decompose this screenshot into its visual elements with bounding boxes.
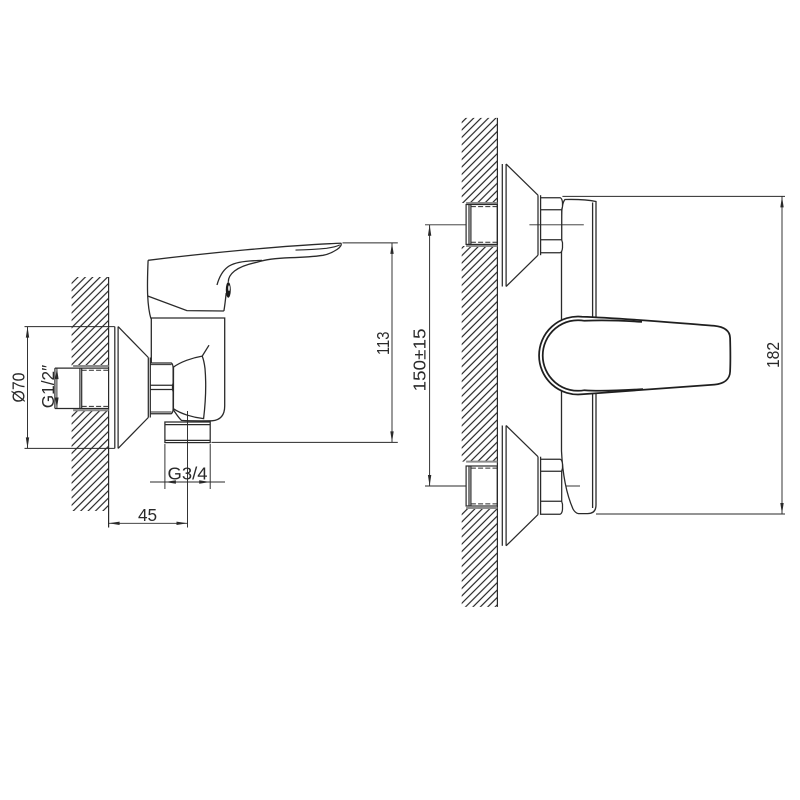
- svg-text:113: 113: [373, 332, 393, 356]
- svg-text:G1/2″: G1/2″: [38, 365, 58, 409]
- svg-text:45: 45: [138, 505, 157, 525]
- svg-text:150±15: 150±15: [410, 329, 430, 392]
- svg-text:Ø70: Ø70: [9, 373, 29, 403]
- svg-text:182: 182: [763, 342, 783, 368]
